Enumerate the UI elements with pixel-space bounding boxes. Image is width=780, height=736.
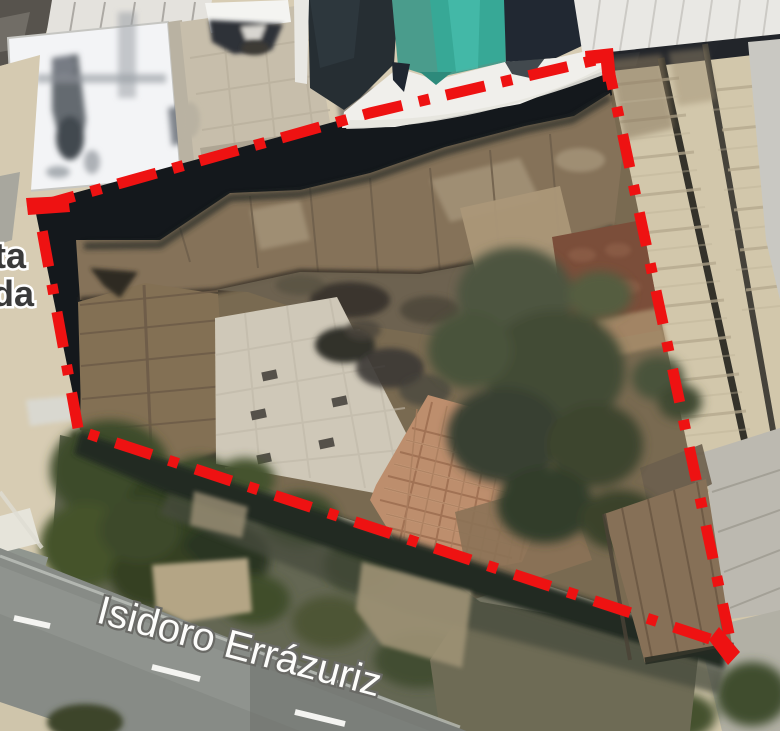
svg-text:ta: ta [0, 235, 27, 276]
svg-text:da: da [0, 273, 35, 314]
